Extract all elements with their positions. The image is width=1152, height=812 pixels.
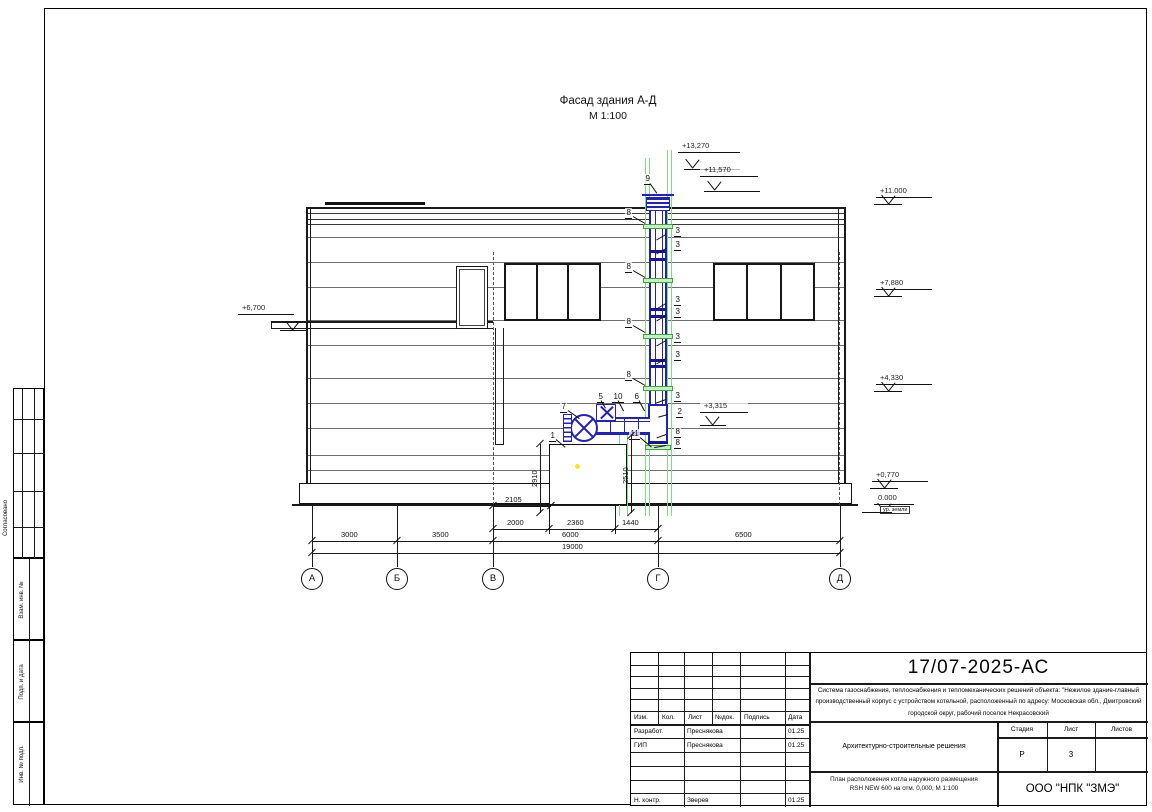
col-kol: Кол.	[662, 714, 675, 721]
callout-8: 8	[625, 208, 632, 219]
callout-3: 3	[674, 307, 681, 318]
boiler-rsh-new-600	[549, 444, 627, 505]
title-block: Изм. Кол. Лист №док. Подпись Дата Разраб…	[630, 652, 1147, 806]
axis-line-d	[839, 252, 840, 505]
col-izm: Изм.	[634, 714, 648, 721]
stamp-vzam-inv: Взам. инв. №	[13, 558, 44, 640]
stamp-inv-podl: Инв. № подл.	[13, 722, 44, 805]
dim-6500: 6500	[735, 531, 752, 539]
drawing-subject: План расположения котла наружного размещ…	[813, 775, 995, 793]
axis-line-v	[493, 252, 494, 505]
row-date: 01.25	[788, 742, 804, 749]
callout-8: 8	[674, 427, 681, 438]
flue-tee	[648, 404, 668, 444]
callout-8: 8	[625, 370, 632, 381]
dim-3000: 3000	[341, 531, 358, 539]
callout-3: 3	[674, 332, 681, 343]
row-name: Преснякова	[687, 728, 723, 735]
callout-8: 8	[625, 262, 632, 273]
axis-b: Б	[386, 568, 408, 590]
sheet-label: Лист	[1047, 722, 1095, 736]
dim-2000: 2000	[507, 519, 524, 527]
podp-label: Подп. и дата	[19, 664, 25, 699]
axis-a: А	[301, 568, 323, 590]
callout-2: 2	[676, 407, 683, 418]
sheets-label: Листов	[1095, 722, 1148, 736]
row-date: 01.25	[788, 797, 804, 804]
approval-grid	[13, 388, 44, 558]
dim-3500: 3500	[432, 531, 449, 539]
dim-6000: 6000	[562, 531, 579, 539]
doc-number: 17/07-2025-АС	[809, 653, 1148, 683]
elev-6700: +6,700	[238, 304, 294, 315]
callout-8: 8	[625, 317, 632, 328]
row-role: Разработ.	[634, 728, 663, 735]
elev-13270: +13,270	[678, 142, 740, 153]
agreed-label: Согласовано	[3, 500, 9, 536]
window-band-left	[504, 263, 601, 321]
dim-1440: 1440	[622, 519, 639, 527]
dim-2360: 2360	[567, 519, 584, 527]
vzam-label: Взам. инв. №	[19, 581, 25, 618]
section-title: Архитектурно-строительные решения	[811, 723, 997, 769]
col-data: Дата	[788, 714, 802, 721]
row-name: Преснякова	[687, 742, 723, 749]
chimney-cap	[646, 197, 670, 211]
boiler-marker-dot	[575, 464, 580, 469]
callout-3: 3	[674, 226, 681, 237]
dim-19000: 19000	[562, 543, 583, 551]
col-list: Лист	[688, 714, 702, 721]
axis-v: В	[482, 568, 504, 590]
view-scale: М 1:100	[498, 110, 718, 122]
dim-2510: 2510	[622, 467, 630, 484]
flue-inlet	[563, 414, 572, 442]
callout-3: 3	[674, 295, 681, 306]
callout-3: 3	[674, 391, 681, 402]
flue-silencer	[596, 404, 616, 421]
flue-fan-elbow	[570, 414, 598, 442]
callout-8: 8	[674, 438, 681, 449]
stage-value: Р	[997, 739, 1047, 769]
row-name: Зверев	[687, 797, 709, 804]
elev-3315: +3,315	[700, 402, 748, 413]
col-podpis: Подпись	[744, 714, 770, 721]
callout-3: 3	[674, 240, 681, 251]
stamp-podp-data: Подп. и дата	[13, 640, 44, 722]
col-ndoc: №док.	[715, 714, 734, 721]
company-name: ООО "НПК "ЗМЭ"	[997, 771, 1148, 807]
project-description: Система газоснабжения, теплоснабжения и …	[812, 684, 1145, 720]
window-band-right	[713, 263, 815, 321]
drawing-sheet: Согласовано Взам. инв. № Подп. и дата Ин…	[0, 0, 1152, 812]
dim-2105: 2105	[505, 496, 522, 504]
row-role: Н. контр.	[634, 797, 661, 804]
row-role: ГИП	[634, 742, 647, 749]
callout-3: 3	[674, 350, 681, 361]
axis-d: Д	[829, 568, 851, 590]
callout-7: 7	[560, 402, 567, 413]
sheet-value: 3	[1047, 739, 1095, 769]
door	[456, 266, 488, 329]
row-date: 01.25	[788, 728, 804, 735]
dim-2910: 2910	[531, 470, 539, 487]
view-title: Фасад здания А-Д	[498, 95, 718, 107]
elev-11570: +11,570	[700, 166, 758, 177]
stage-label: Стадия	[997, 722, 1047, 736]
inv-label: Инв. № подл.	[19, 745, 25, 782]
axis-g: Г	[647, 568, 669, 590]
